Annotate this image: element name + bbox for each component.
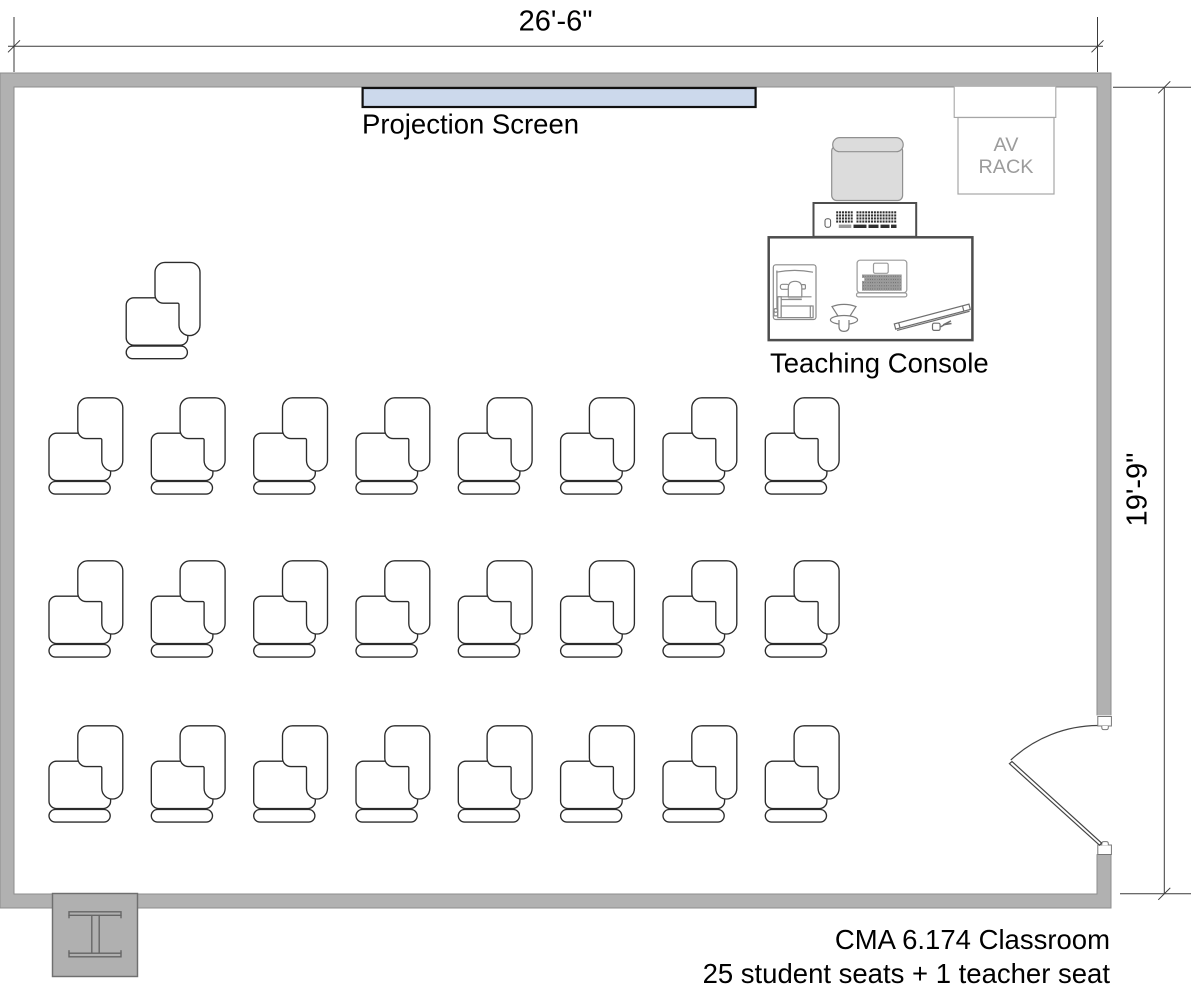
svg-text:26'-6": 26'-6"	[519, 6, 593, 38]
svg-text:Teaching Console: Teaching Console	[770, 348, 989, 379]
svg-text:19'-9": 19'-9"	[1122, 453, 1154, 527]
svg-text:Projection Screen: Projection Screen	[362, 109, 579, 140]
svg-text:AV: AV	[994, 134, 1020, 156]
svg-text:RACK: RACK	[979, 156, 1034, 178]
svg-text:CMA 6.174 Classroom: CMA 6.174 Classroom	[835, 924, 1110, 955]
svg-text:25 student seats + 1 teacher s: 25 student seats + 1 teacher seat	[703, 958, 1111, 989]
